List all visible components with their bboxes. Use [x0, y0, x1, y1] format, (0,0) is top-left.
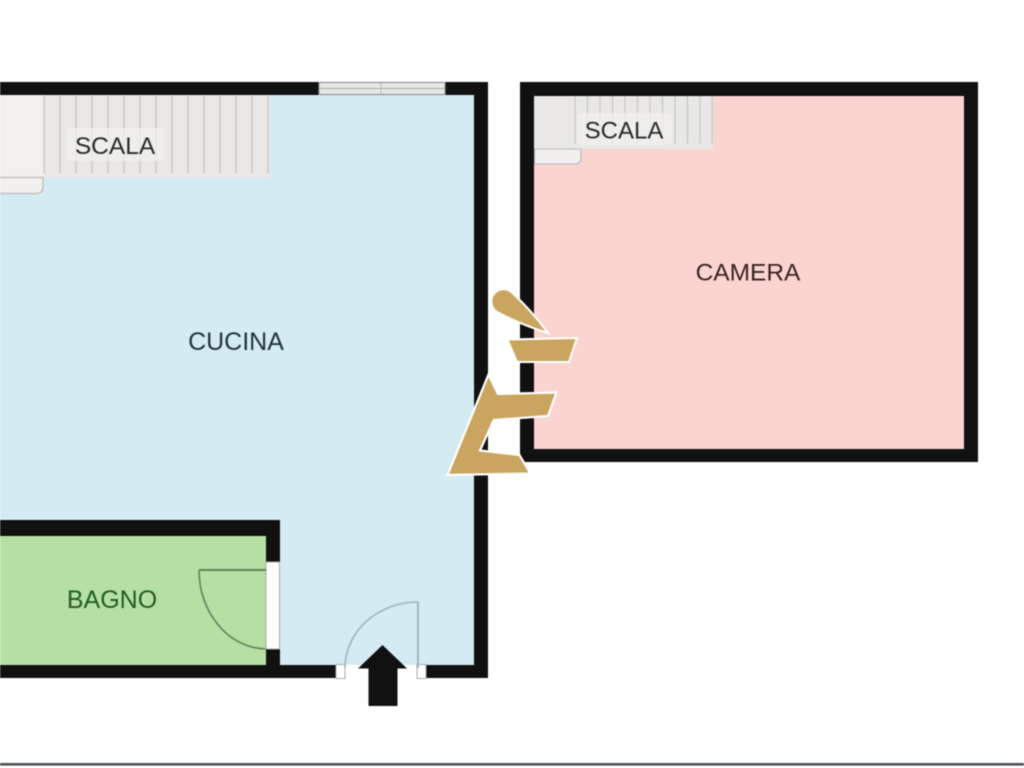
svg-text:SCALA: SCALA — [585, 118, 664, 145]
svg-text:BAGNO: BAGNO — [67, 586, 157, 614]
svg-text:SCALA: SCALA — [75, 133, 156, 160]
svg-text:CAMERA: CAMERA — [696, 260, 801, 287]
svg-text:CUCINA: CUCINA — [188, 328, 284, 356]
